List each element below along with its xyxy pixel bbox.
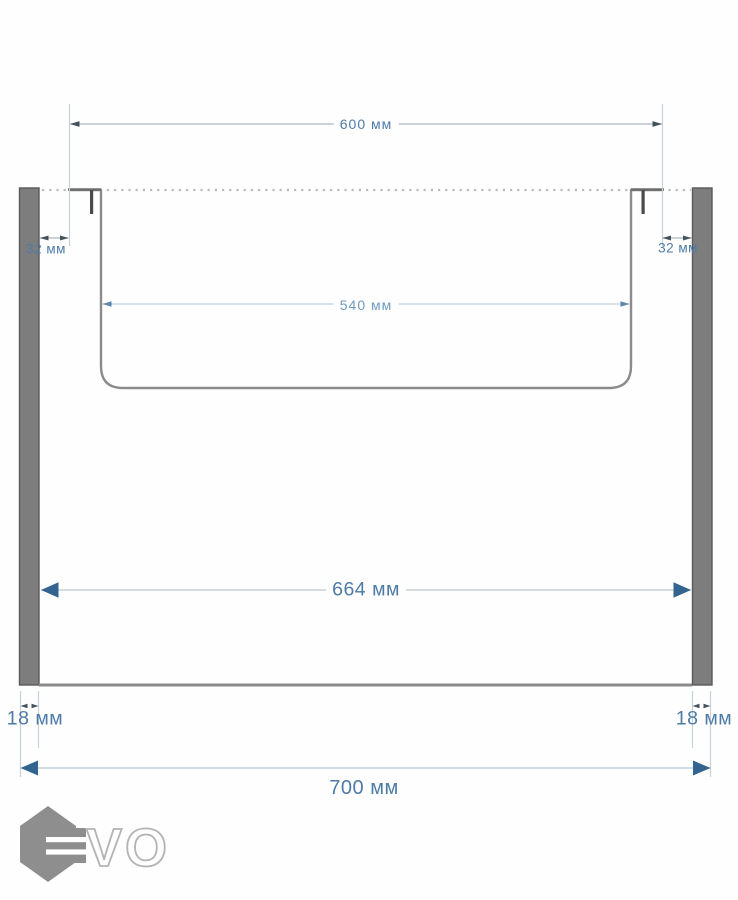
right-side-panel bbox=[693, 188, 713, 685]
sink-mount-clip-left bbox=[90, 190, 93, 214]
dim-label-700: 700 мм bbox=[329, 778, 398, 798]
dim-label-600: 600 мм bbox=[334, 116, 399, 132]
dimension-drawing-page: VO 600 мм 32 мм 32 мм 540 мм 664 мм 18 м… bbox=[0, 0, 738, 900]
sink-outline bbox=[68, 190, 664, 388]
dim-label-32-left: 32 мм bbox=[26, 242, 66, 256]
dim-label-18-right: 18 мм bbox=[676, 709, 732, 729]
dimension-32-left bbox=[40, 236, 69, 241]
dim-label-18-left: 18 мм bbox=[7, 709, 63, 729]
evo-logo: VO bbox=[20, 806, 170, 882]
sink-mount-clip-right bbox=[642, 190, 645, 214]
left-side-panel bbox=[20, 188, 40, 685]
dimension-drawing: VO bbox=[0, 0, 738, 900]
evo-logo-outlined-letters: VO bbox=[86, 818, 170, 878]
dim-label-664: 664 мм bbox=[326, 579, 406, 601]
dim-label-32-right: 32 мм bbox=[658, 241, 698, 255]
dim-label-540: 540 мм bbox=[334, 297, 399, 313]
dimension-700 bbox=[21, 761, 711, 776]
